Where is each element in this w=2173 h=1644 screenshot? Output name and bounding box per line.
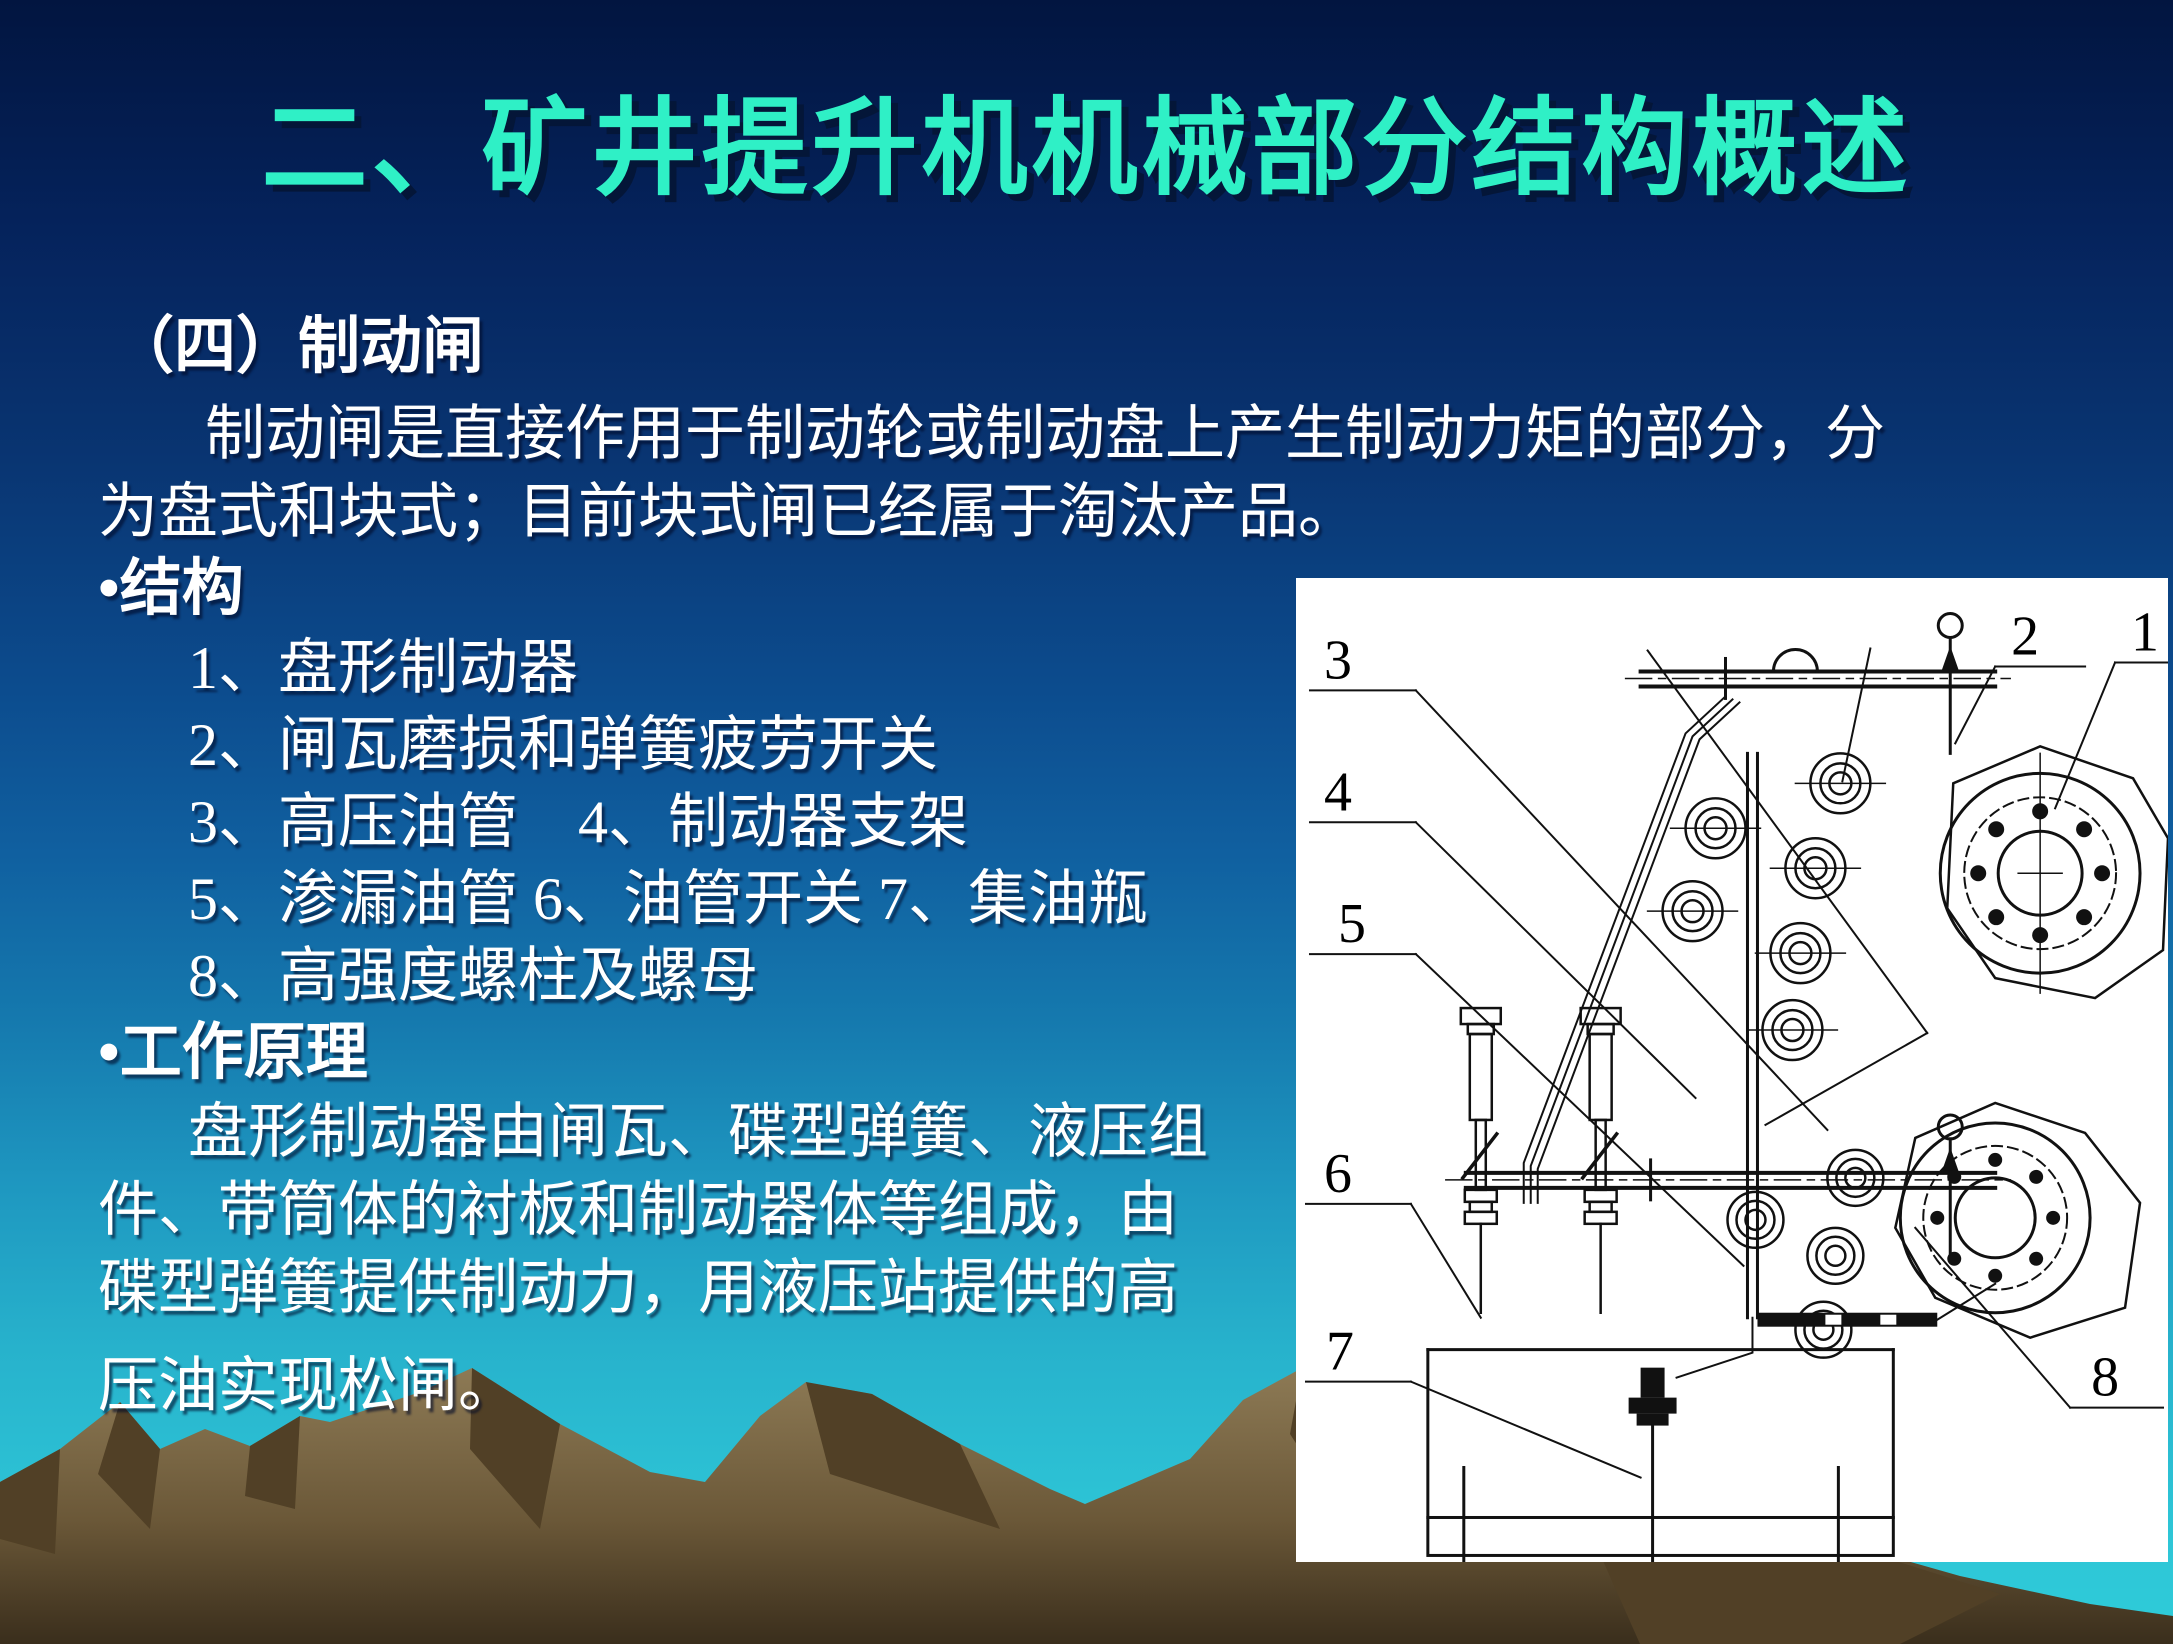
diagram-label-1: 1 xyxy=(2131,601,2159,663)
brake-diagram-figure: 1 2 3 4 5 6 7 8 xyxy=(1296,578,2168,1562)
section-heading: （四）制动闸 xyxy=(112,312,484,383)
principle-line-4: 压油实现松闸。 xyxy=(98,1352,518,1421)
diagram-label-4: 4 xyxy=(1324,761,1352,823)
principle-line-2: 件、带筒体的衬板和制动器体等组成，由 xyxy=(98,1176,1178,1245)
intro-line-2: 为盘式和块式；目前块式闸已经属于淘汰产品。 xyxy=(98,478,1358,547)
diagram-label-3: 3 xyxy=(1324,629,1352,691)
brake-diagram-drawing: 1 2 3 4 5 6 7 8 xyxy=(1296,578,2168,1562)
diagram-label-5: 5 xyxy=(1338,893,1366,955)
principle-line-3: 碟型弹簧提供制动力，用液压站提供的高 xyxy=(98,1254,1178,1323)
diagram-label-6: 6 xyxy=(1324,1143,1352,1205)
diagram-label-7: 7 xyxy=(1326,1321,1354,1383)
diagram-label-8: 8 xyxy=(2091,1347,2119,1409)
slide-title: 二、矿井提升机机械部分结构概述 xyxy=(0,62,2173,216)
structure-item-2: 2、闸瓦磨损和弹簧疲劳开关 xyxy=(188,711,938,780)
slide-canvas: 二、矿井提升机机械部分结构概述 （四）制动闸 制动闸是直接作用于制动轮或制动盘上… xyxy=(0,0,2173,1644)
structure-item-5: 8、高强度螺柱及螺母 xyxy=(188,942,758,1011)
diagram-label-2: 2 xyxy=(2011,605,2039,667)
structure-heading: •结构 xyxy=(98,554,244,625)
structure-item-1: 1、盘形制动器 xyxy=(188,634,578,703)
principle-heading: •工作原理 xyxy=(98,1018,368,1089)
structure-item-4: 5、渗漏油管 6、油管开关 7、集油瓶 xyxy=(188,865,1148,934)
principle-line-1: 盘形制动器由闸瓦、碟型弹簧、液压组 xyxy=(188,1098,1208,1167)
structure-item-3: 3、高压油管 4、制动器支架 xyxy=(188,788,968,857)
intro-line-1: 制动闸是直接作用于制动轮或制动盘上产生制动力矩的部分，分 xyxy=(205,400,1885,469)
